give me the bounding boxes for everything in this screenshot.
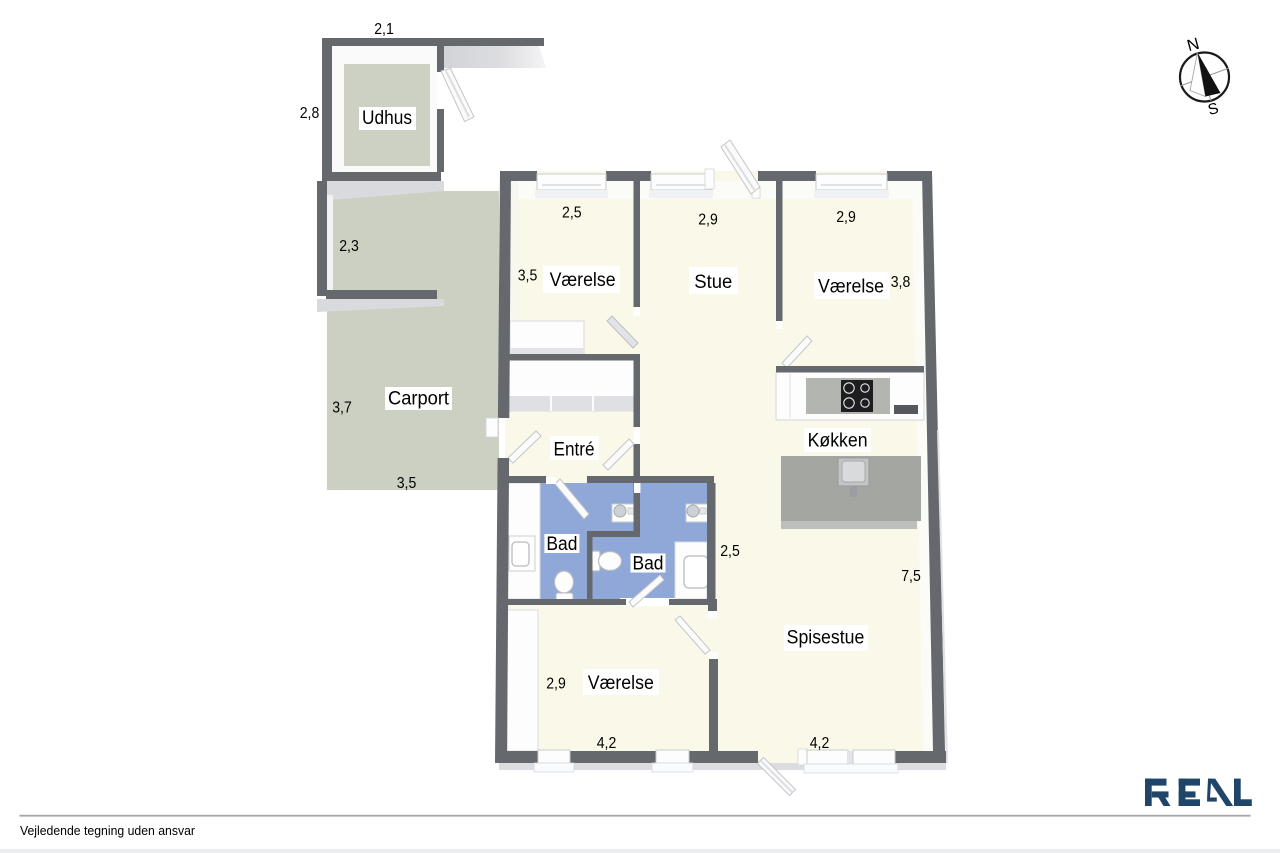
svg-text:Værelse: Værelse [550,270,616,291]
svg-text:2,8: 2,8 [300,105,320,122]
svg-text:2,5: 2,5 [562,205,582,222]
svg-text:Carport: Carport [388,389,450,410]
svg-text:Køkken: Køkken [808,431,868,452]
svg-text:Bad: Bad [546,534,577,555]
svg-text:Bad: Bad [633,553,664,574]
svg-text:Værelse: Værelse [588,673,654,694]
svg-text:4,2: 4,2 [810,735,830,752]
svg-text:Udhus: Udhus [362,108,412,129]
svg-text:3,5: 3,5 [397,475,417,492]
svg-text:2,3: 2,3 [339,238,359,255]
svg-text:2,9: 2,9 [836,209,856,226]
svg-text:2,5: 2,5 [720,543,740,560]
svg-text:3,7: 3,7 [332,400,352,417]
svg-text:Vejledende tegning uden ansvar: Vejledende tegning uden ansvar [20,824,195,838]
svg-text:Stue: Stue [694,272,732,293]
svg-text:Værelse: Værelse [818,277,884,298]
svg-text:7,5: 7,5 [901,568,921,585]
svg-text:Spisestue: Spisestue [787,628,865,649]
svg-text:3,8: 3,8 [891,274,911,291]
svg-text:2,1: 2,1 [374,21,394,38]
svg-text:4,2: 4,2 [597,735,617,752]
svg-text:Entré: Entré [554,440,595,461]
svg-text:3,5: 3,5 [518,268,538,285]
svg-text:2,9: 2,9 [546,676,566,693]
svg-text:2,9: 2,9 [698,212,718,229]
